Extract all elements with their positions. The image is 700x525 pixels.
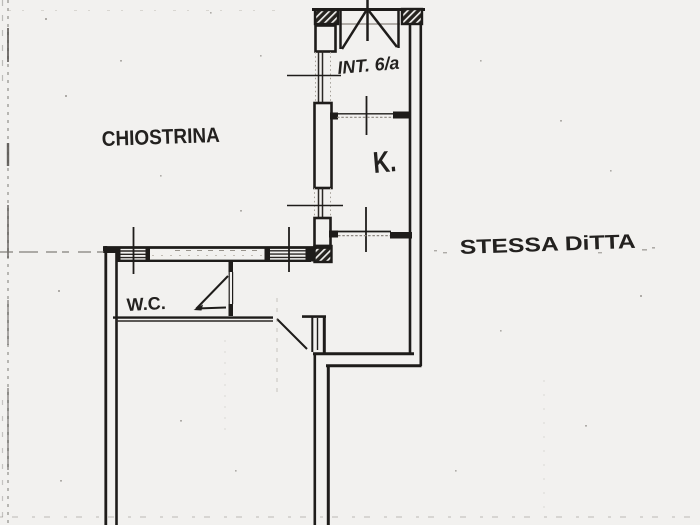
svg-text:CHIOSTRINA: CHIOSTRINA <box>101 124 220 151</box>
svg-text:K.: K. <box>372 145 398 180</box>
svg-text:STESSA DiTTA: STESSA DiTTA <box>459 231 636 259</box>
svg-text:W.C.: W.C. <box>126 293 166 315</box>
svg-text:INT. 6/a: INT. 6/a <box>337 53 401 78</box>
